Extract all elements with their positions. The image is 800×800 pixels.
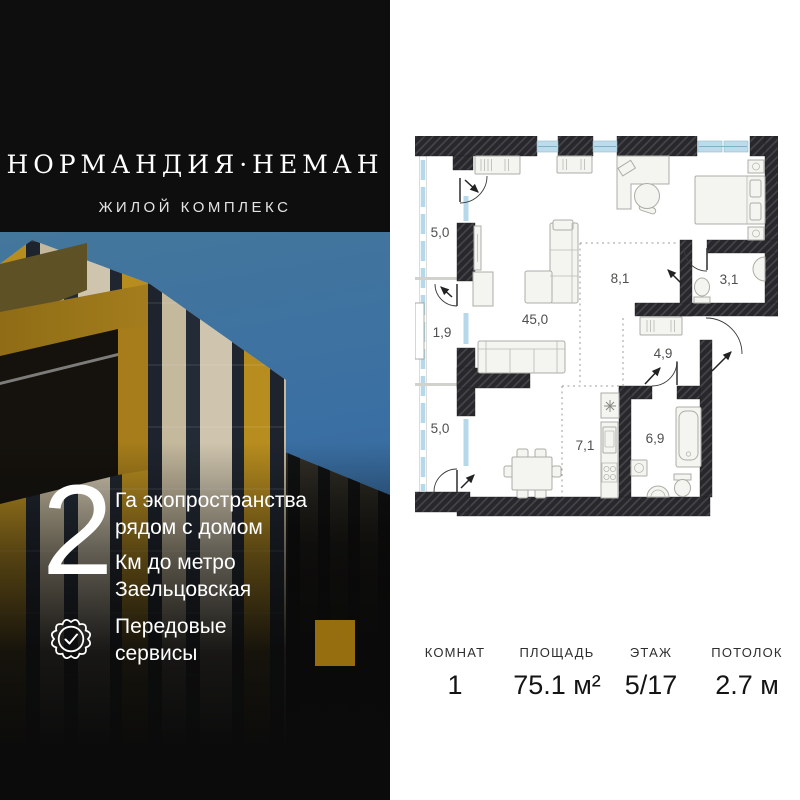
room-area-label: 8,1 (611, 271, 630, 286)
floor-plan-image: 5,0 1,9 5,0 45,0 8,1 3,1 4,9 7,1 6,9 (415, 136, 778, 528)
stat-value: 5/17 (625, 670, 678, 701)
feature-number: 2 (42, 462, 113, 600)
stat-value: 1 (425, 670, 486, 701)
room-area-label: 3,1 (720, 272, 739, 287)
stat-floor: ЭТАЖ 5/17 (625, 645, 678, 701)
feature-list: 2 Га экопространства рядом с домом Км до… (0, 0, 390, 800)
seal-check-icon (46, 614, 96, 664)
room-area-label: 4,9 (654, 346, 673, 361)
stat-label: ЭТАЖ (625, 645, 678, 660)
stat-label: ПЛОЩАДЬ (513, 645, 601, 660)
stat-area: ПЛОЩАДЬ 75.1 м² (513, 645, 601, 701)
real-estate-banner[interactable]: НОРМАНДИЯ·НЕМАН ЖИЛОЙ КОМПЛЕКС 2 Га экоп… (0, 0, 800, 800)
stat-label: ПОТОЛОК (711, 645, 782, 660)
room-area-label: 1,9 (433, 325, 452, 340)
stat-label: КОМНАТ (425, 645, 486, 660)
floor-plan-svg: 5,0 1,9 5,0 45,0 8,1 3,1 4,9 7,1 6,9 (415, 136, 778, 528)
feature-eco: Га экопространства рядом с домом (115, 487, 307, 541)
stat-value: 2.7 м (711, 670, 782, 701)
room-area-label: 6,9 (646, 431, 665, 446)
apartment-stats: КОМНАТ 1 ПЛОЩАДЬ 75.1 м² ЭТАЖ 5/17 ПОТОЛ… (390, 645, 800, 715)
feature-metro: Км до метро Заельцовская (115, 549, 251, 603)
room-area-label: 5,0 (431, 225, 450, 240)
stat-ceiling: ПОТОЛОК 2.7 м (711, 645, 782, 701)
brand-panel: НОРМАНДИЯ·НЕМАН ЖИЛОЙ КОМПЛЕКС 2 Га экоп… (0, 0, 390, 800)
room-area-label: 5,0 (431, 421, 450, 436)
stat-value: 75.1 м² (513, 670, 601, 701)
feature-services: Передовые сервисы (115, 613, 227, 667)
room-area-label: 7,1 (576, 438, 595, 453)
room-area-label: 45,0 (522, 312, 548, 327)
apartment-panel: 5,0 1,9 5,0 45,0 8,1 3,1 4,9 7,1 6,9 КОМ… (390, 0, 800, 800)
stat-rooms: КОМНАТ 1 (425, 645, 486, 701)
